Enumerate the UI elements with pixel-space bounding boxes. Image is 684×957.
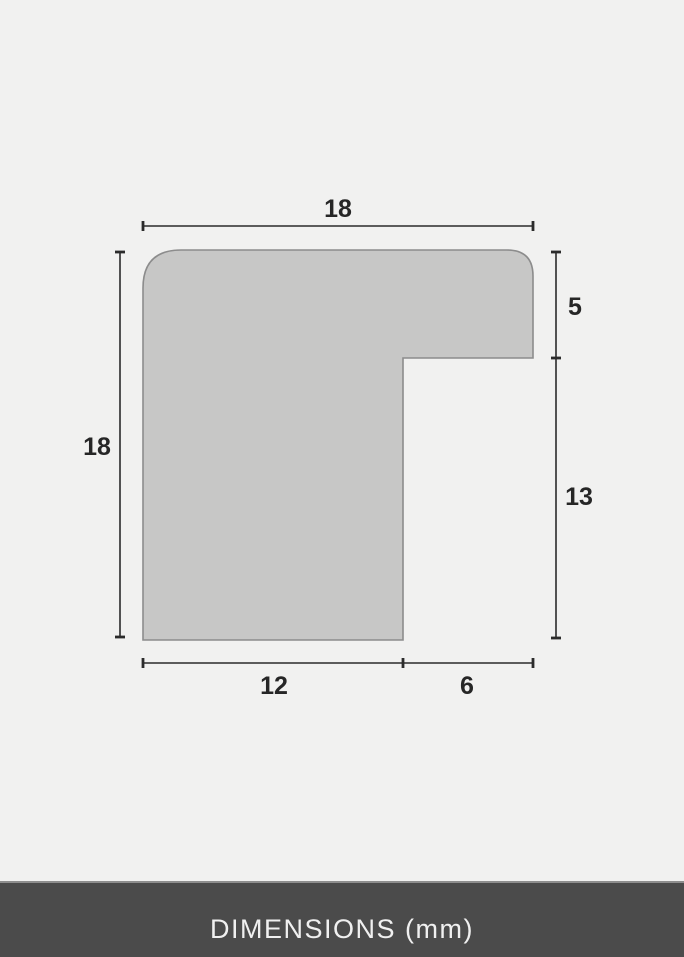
- dim-label-right-lower: 13: [565, 483, 593, 511]
- dim-label-right-upper: 5: [568, 293, 582, 321]
- dimensions-unit-bar: DIMENSIONS (mm): [0, 881, 684, 957]
- dim-label-left-height: 18: [83, 433, 111, 461]
- dimension-left-height: 18: [83, 252, 125, 637]
- dim-label-top-width: 18: [324, 195, 352, 223]
- frame-profile-dimension-figure: 18 18 5 13: [0, 0, 684, 957]
- moulding-profile-shape: [143, 250, 533, 640]
- profile-diagram: 18 18 5 13: [0, 0, 684, 881]
- dim-label-bottom-left: 12: [260, 672, 288, 700]
- dimension-bottom-widths: 12 6: [143, 658, 533, 700]
- dim-label-bottom-right: 6: [460, 672, 474, 700]
- dimension-right-heights: 5 13: [551, 252, 593, 638]
- dimension-top-width: 18: [143, 195, 533, 231]
- dimensions-unit-label: DIMENSIONS (mm): [210, 914, 474, 945]
